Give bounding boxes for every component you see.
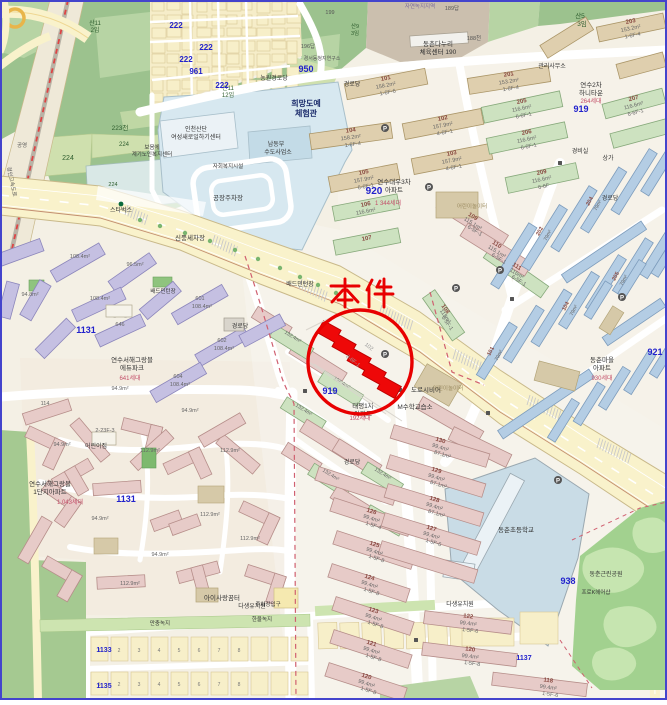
svg-text:M수학교습소: M수학교습소 — [397, 402, 432, 411]
svg-text:222: 222 — [199, 43, 213, 52]
svg-text:수도사업소: 수도사업소 — [264, 148, 292, 156]
svg-text:다생유치원: 다생유치원 — [446, 600, 474, 608]
svg-text:1131: 1131 — [76, 325, 96, 335]
svg-text:94.9m²: 94.9m² — [151, 552, 168, 558]
svg-text:경로당: 경로당 — [344, 80, 361, 88]
svg-text:태평1차: 태평1차 — [352, 401, 374, 410]
svg-text:224: 224 — [119, 142, 130, 148]
svg-text:경로당: 경로당 — [602, 194, 619, 202]
svg-text:3: 3 — [138, 682, 141, 688]
svg-text:자회복지시설: 자회복지시설 — [213, 162, 243, 170]
svg-text:배드민턴장: 배드민턴장 — [150, 287, 175, 295]
svg-text:264세대: 264세대 — [580, 97, 601, 105]
svg-text:상가: 상가 — [602, 154, 614, 162]
svg-text:196답: 196답 — [301, 43, 315, 50]
svg-text:641세대: 641세대 — [119, 374, 140, 382]
svg-text:602: 602 — [217, 338, 226, 344]
svg-text:94.9m²: 94.9m² — [181, 408, 198, 414]
svg-text:114: 114 — [41, 401, 50, 407]
svg-text:농원경로당: 농원경로당 — [260, 74, 288, 82]
svg-text:224: 224 — [62, 155, 74, 162]
svg-text:계기노인복지센터: 계기노인복지센터 — [132, 150, 172, 158]
svg-text:601: 601 — [195, 296, 204, 302]
svg-text:2임: 2임 — [91, 26, 100, 34]
svg-text:산5: 산5 — [575, 11, 585, 20]
svg-text:연수서해그랑블: 연수서해그랑블 — [111, 355, 153, 364]
svg-text:94.9m²: 94.9m² — [53, 442, 70, 448]
svg-text:2: 2 — [118, 648, 121, 654]
svg-text:산11: 산11 — [89, 19, 101, 27]
svg-text:연수대우3차: 연수대우3차 — [377, 177, 411, 186]
svg-text:108.4m²: 108.4m² — [192, 304, 212, 310]
svg-text:604: 604 — [173, 374, 182, 380]
svg-text:스타벅스: 스타벅스 — [110, 206, 133, 214]
svg-text:108.4m²: 108.4m² — [170, 382, 190, 388]
svg-text:P: P — [383, 127, 387, 133]
svg-text:4: 4 — [158, 648, 161, 654]
svg-text:222: 222 — [169, 21, 183, 30]
svg-text:12임: 12임 — [222, 91, 234, 99]
svg-text:인천산단: 인천산단 — [185, 125, 208, 133]
svg-text:P: P — [454, 287, 458, 293]
svg-text:94.9m²: 94.9m² — [91, 516, 108, 522]
svg-text:5: 5 — [178, 648, 181, 654]
svg-text:동춘마을: 동춘마을 — [590, 355, 614, 364]
svg-text:224: 224 — [108, 182, 117, 188]
svg-text:112.9m²: 112.9m² — [220, 448, 240, 454]
svg-text:108.4m²: 108.4m² — [90, 296, 110, 302]
svg-text:경로당: 경로당 — [344, 458, 361, 466]
svg-text:어린이놀이터: 어린이놀이터 — [433, 384, 463, 392]
svg-text:930세대: 930세대 — [591, 374, 612, 382]
svg-text:1 344세대: 1 344세대 — [375, 199, 401, 207]
svg-text:112.9m²: 112.9m² — [140, 448, 160, 454]
svg-text:646: 646 — [115, 322, 124, 328]
svg-text:921: 921 — [647, 347, 662, 357]
svg-text:여성새로일하기센터: 여성새로일하기센터 — [171, 133, 221, 141]
svg-text:919: 919 — [573, 104, 588, 114]
svg-text:프로K헤어샵: 프로K헤어샵 — [582, 588, 611, 596]
svg-text:222: 222 — [179, 55, 193, 64]
svg-text:아파트: 아파트 — [385, 185, 403, 194]
svg-text:경로당: 경로당 — [232, 322, 249, 330]
svg-text:아이사랑꿈터: 아이사랑꿈터 — [204, 593, 240, 602]
svg-text:108.4m²: 108.4m² — [214, 346, 234, 352]
svg-text:2: 2 — [118, 682, 121, 688]
svg-text:체육센터 190: 체육센터 190 — [420, 47, 457, 56]
svg-text:112.9m²: 112.9m² — [120, 581, 140, 587]
svg-text:P: P — [556, 479, 560, 485]
svg-text:112.9m²: 112.9m² — [240, 536, 260, 542]
svg-text:938: 938 — [560, 576, 575, 586]
svg-text:다생유치원: 다생유치원 — [238, 602, 266, 610]
svg-text:961: 961 — [189, 67, 203, 76]
svg-text:배드민턴장: 배드민턴장 — [286, 280, 314, 288]
svg-text:4: 4 — [158, 682, 161, 688]
svg-text:5: 5 — [178, 682, 181, 688]
svg-text:1131: 1131 — [116, 494, 136, 504]
svg-text:1135: 1135 — [96, 683, 111, 690]
svg-text:7: 7 — [218, 682, 221, 688]
svg-text:희망도예: 희망도예 — [291, 98, 320, 108]
svg-text:108.4m²: 108.4m² — [70, 254, 90, 260]
svg-text:P: P — [427, 186, 431, 192]
svg-text:공장주차장: 공장주차장 — [213, 193, 243, 202]
svg-text:222: 222 — [215, 81, 229, 90]
svg-text:3: 3 — [138, 648, 141, 654]
svg-text:연수서해그랑블: 연수서해그랑블 — [29, 479, 71, 488]
svg-text:3임: 3임 — [577, 20, 587, 28]
svg-text:1133: 1133 — [96, 647, 111, 654]
svg-text:8: 8 — [238, 682, 241, 688]
svg-text:어린이놀이터: 어린이놀이터 — [457, 202, 487, 210]
svg-text:94.9m²: 94.9m² — [111, 386, 128, 392]
svg-text:1단지아파트: 1단지아파트 — [33, 487, 67, 496]
svg-text:6: 6 — [198, 682, 201, 688]
svg-text:189답: 189답 — [445, 5, 459, 12]
svg-text:3임: 3임 — [351, 29, 359, 37]
svg-text:919: 919 — [322, 386, 337, 396]
svg-text:1137: 1137 — [516, 655, 531, 662]
svg-text:경서동청지연구소: 경서동청지연구소 — [304, 55, 341, 62]
svg-text:남동부: 남동부 — [268, 140, 285, 148]
svg-text:동촌다누리: 동촌다누리 — [423, 39, 453, 48]
svg-text:223천: 223천 — [112, 123, 129, 132]
svg-text:만충녹지: 만충녹지 — [150, 619, 170, 627]
svg-text:신풍세차장: 신풍세차장 — [175, 233, 205, 242]
svg-text:1,043세대: 1,043세대 — [57, 498, 83, 506]
svg-text:96.5m²: 96.5m² — [126, 262, 143, 268]
svg-text:112.9m²: 112.9m² — [200, 512, 220, 518]
svg-text:P: P — [383, 353, 387, 359]
svg-text:7: 7 — [218, 648, 221, 654]
svg-text:하니타운: 하니타운 — [579, 88, 603, 97]
svg-text:관리사무소: 관리사무소 — [538, 62, 566, 70]
svg-text:94.8m²: 94.8m² — [21, 292, 38, 298]
svg-text:199: 199 — [325, 10, 334, 16]
svg-text:경비실: 경비실 — [572, 147, 589, 155]
svg-text:어린이집: 어린이집 — [85, 442, 107, 450]
svg-text:한울녹지: 한울녹지 — [252, 615, 272, 623]
svg-text:산9: 산9 — [351, 22, 359, 30]
svg-text:아파트: 아파트 — [593, 363, 611, 372]
svg-text:에듀파크: 에듀파크 — [120, 363, 144, 372]
svg-text:공영: 공영 — [17, 141, 27, 149]
svg-text:188천: 188천 — [467, 34, 481, 42]
svg-text:동춘근린공원: 동춘근린공원 — [589, 570, 622, 578]
svg-text:950: 950 — [298, 64, 313, 74]
svg-text:연수2차: 연수2차 — [580, 80, 602, 89]
svg-text:동춘초등학교: 동춘초등학교 — [498, 525, 534, 534]
svg-text:2-23F-3: 2-23F-3 — [95, 428, 114, 434]
svg-text:P: P — [620, 296, 624, 302]
svg-text:6: 6 — [198, 648, 201, 654]
svg-text:8: 8 — [238, 648, 241, 654]
svg-text:보음에: 보음에 — [144, 143, 159, 151]
svg-text:자연녹지지역: 자연녹지지역 — [405, 2, 435, 10]
svg-text:P: P — [498, 269, 502, 275]
svg-text:체험관: 체험관 — [295, 108, 318, 118]
